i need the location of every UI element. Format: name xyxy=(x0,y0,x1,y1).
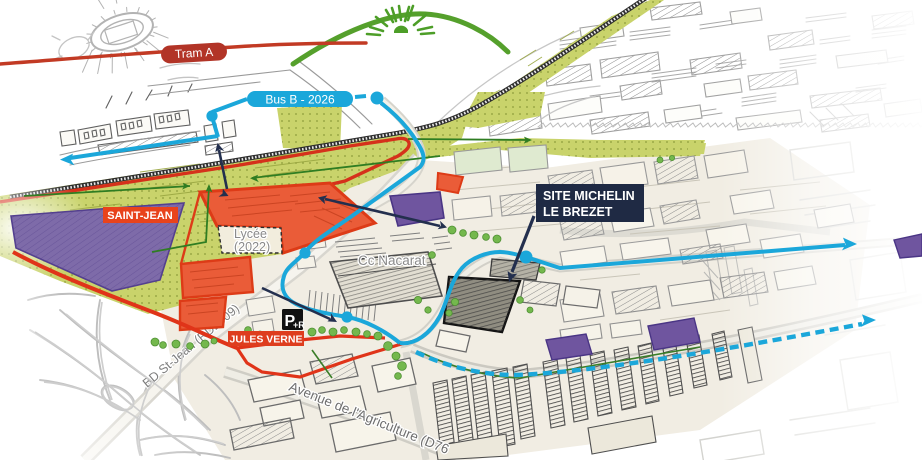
svg-text:+R: +R xyxy=(293,320,305,330)
svg-text:Lycée: Lycée xyxy=(234,227,267,241)
svg-text:LE BREZET: LE BREZET xyxy=(543,205,613,219)
svg-text:JULES VERNE: JULES VERNE xyxy=(230,334,303,346)
svg-text:Cc Nacarat: Cc Nacarat xyxy=(358,253,426,268)
svg-text:Bus B - 2026: Bus B - 2026 xyxy=(265,93,335,107)
svg-text:Tram A: Tram A xyxy=(175,45,214,61)
svg-text:SITE MICHELIN: SITE MICHELIN xyxy=(543,189,635,203)
svg-text:SAINT-JEAN: SAINT-JEAN xyxy=(107,210,172,222)
svg-text:(2022): (2022) xyxy=(234,240,270,254)
